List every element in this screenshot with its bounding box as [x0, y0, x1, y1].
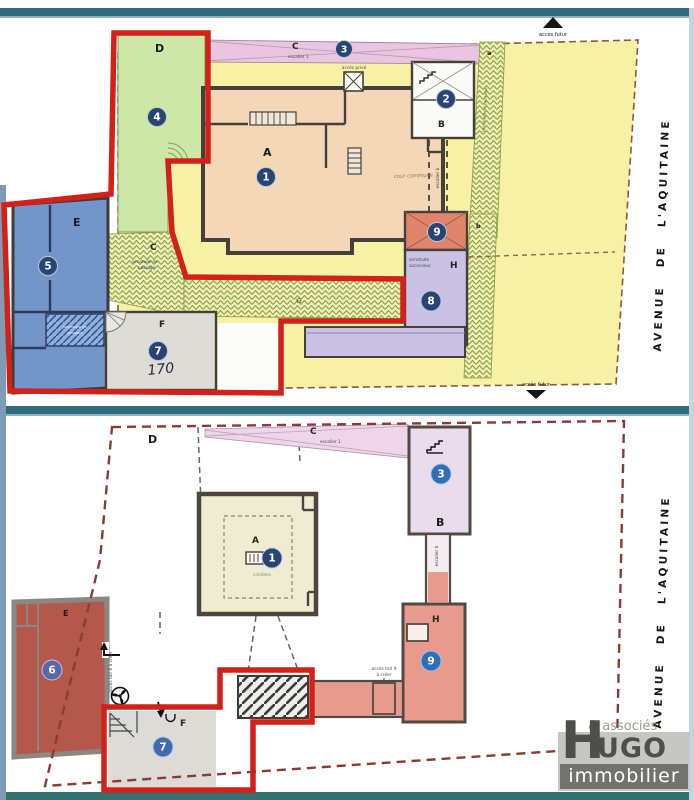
region-g-label: G	[296, 297, 302, 305]
svg-text:escalier 1: escalier 1	[320, 439, 341, 445]
region-c-hatch-label: C	[150, 243, 157, 253]
middle-border-band	[0, 406, 694, 414]
corridor-vertical: escalier b	[426, 534, 450, 604]
arrow-up-icon	[543, 17, 563, 28]
svg-text:9: 9	[427, 656, 434, 668]
ladder-icon	[348, 148, 361, 174]
svg-text:6: 6	[48, 665, 55, 677]
scanned-floorplan-page: C escalier 1 3 D 4 a servitude de passag…	[0, 0, 694, 800]
svg-text:escalier b: escalier b	[434, 545, 440, 566]
lot-circle-2: 2	[437, 90, 456, 109]
servitude-ascenseur-line1: servitude	[409, 257, 430, 263]
combles-icon	[246, 552, 263, 564]
lot-circle-1: 1	[257, 168, 276, 187]
region-f-bottom: F	[104, 670, 312, 790]
escalier-1-label: escalier 1	[288, 54, 309, 60]
white-court-inside-red	[218, 323, 281, 391]
logo-immobilier-band: immobilier	[560, 764, 688, 789]
hatched-strip-f	[238, 676, 308, 718]
svg-text:2: 2	[442, 94, 449, 106]
acces-prive-label: accès privé	[342, 64, 367, 71]
lot-circle-7-bottom: 7	[153, 737, 173, 757]
svg-text:accès futur: accès futur	[522, 381, 551, 388]
svg-text:9: 9	[433, 227, 440, 239]
acces-prive-shaft: accès privé	[342, 64, 367, 91]
middle-border-line	[0, 414, 694, 416]
floorplan-canvas: C escalier 1 3 D 4 a servitude de passag…	[0, 0, 694, 800]
svg-text:passage: passage	[67, 330, 83, 335]
lot-circle-8: 8	[421, 291, 441, 311]
arrow-down-icon	[526, 390, 546, 399]
lot-circle-9-top: 9	[428, 223, 447, 242]
svg-text:8: 8	[427, 296, 434, 308]
region-e-top: servitude de passage E	[13, 198, 108, 393]
logo-hugo-immobilier: & associés H UGO immobilier	[548, 700, 694, 795]
svg-text:C: C	[310, 427, 317, 437]
lot-circle-7-top: 7	[149, 342, 168, 361]
right-page-edge	[689, 8, 694, 800]
escalier-b-label: escalier b	[435, 167, 441, 188]
svg-text:accès futur: accès futur	[539, 31, 568, 38]
street-name-bottom: AVENUE DE L'AQUITAINE	[652, 495, 672, 729]
lot-circle-4: 4	[148, 108, 167, 127]
svg-text:1: 1	[268, 553, 275, 565]
svg-text:7: 7	[159, 742, 166, 754]
acces-futur-top: accès futur	[539, 17, 568, 38]
svg-text:7: 7	[154, 346, 161, 358]
svg-text:servitude de: servitude de	[63, 324, 87, 329]
svg-text:B: B	[436, 516, 444, 529]
hatch-band-b: b	[464, 214, 497, 378]
lot-circle-9-bottom: 9	[421, 651, 441, 671]
zone-a-label: a	[487, 49, 491, 57]
acces-toit-6-label: accès toit 6 à créer	[107, 651, 114, 693]
region-d-label: D	[155, 42, 164, 55]
handwritten-170: 170	[147, 360, 175, 379]
region-c-bottom: C escalier 1	[205, 424, 408, 458]
logo-box: H UGO immobilier	[558, 732, 690, 791]
region-e-bottom: E	[14, 599, 109, 757]
logo-ugo-letters: UGO	[597, 733, 667, 764]
svg-text:F: F	[180, 719, 186, 729]
svg-text:combles: combles	[253, 572, 272, 578]
svg-text:3: 3	[437, 469, 444, 481]
region-h-label: H	[450, 261, 458, 271]
svg-text:à créer: à créer	[376, 671, 391, 678]
svg-text:A: A	[252, 536, 259, 546]
zone-b-label: b	[476, 222, 481, 230]
svg-text:5: 5	[44, 261, 51, 273]
top-border-band	[0, 8, 694, 16]
svg-text:H: H	[432, 615, 440, 625]
servitude-ascenseur-line2: ascenseur	[409, 263, 431, 269]
stairs-icon-a	[250, 112, 296, 125]
region-a-label: A	[263, 146, 272, 159]
svg-text:3: 3	[341, 45, 348, 56]
servitude-line2: passage	[138, 265, 155, 270]
servitude-line1: servitude de	[132, 259, 158, 264]
lot-circle-5: 5	[39, 257, 58, 276]
corridor-horizontal: accès toit 9 à créer	[305, 665, 403, 717]
region-b-label: B	[438, 120, 445, 130]
svg-text:accès toit 9: accès toit 9	[372, 665, 397, 672]
acces-futur-bottom: accès futur	[522, 381, 551, 399]
lot-circle-3: 3	[336, 41, 353, 58]
region-d-bottom-label: D	[148, 433, 157, 446]
top-border-line	[0, 16, 694, 18]
lot-circle-3-bottom: 3	[431, 464, 451, 484]
street-name-top: AVENUE DE L'AQUITAINE	[652, 118, 672, 352]
plan-top: C escalier 1 3 D 4 a servitude de passag…	[4, 17, 672, 399]
svg-text:1: 1	[262, 172, 269, 184]
region-c-label: C	[292, 42, 299, 52]
lot-circle-1-bottom: 1	[262, 548, 282, 568]
building-a-bottom: A combles	[199, 494, 316, 614]
fan-symbol	[110, 688, 128, 706]
lot-circle-6: 6	[42, 660, 62, 680]
svg-text:4: 4	[153, 112, 160, 124]
region-f-label: F	[159, 320, 165, 330]
region-e-label: E	[73, 216, 81, 229]
svg-text:E: E	[63, 609, 68, 618]
